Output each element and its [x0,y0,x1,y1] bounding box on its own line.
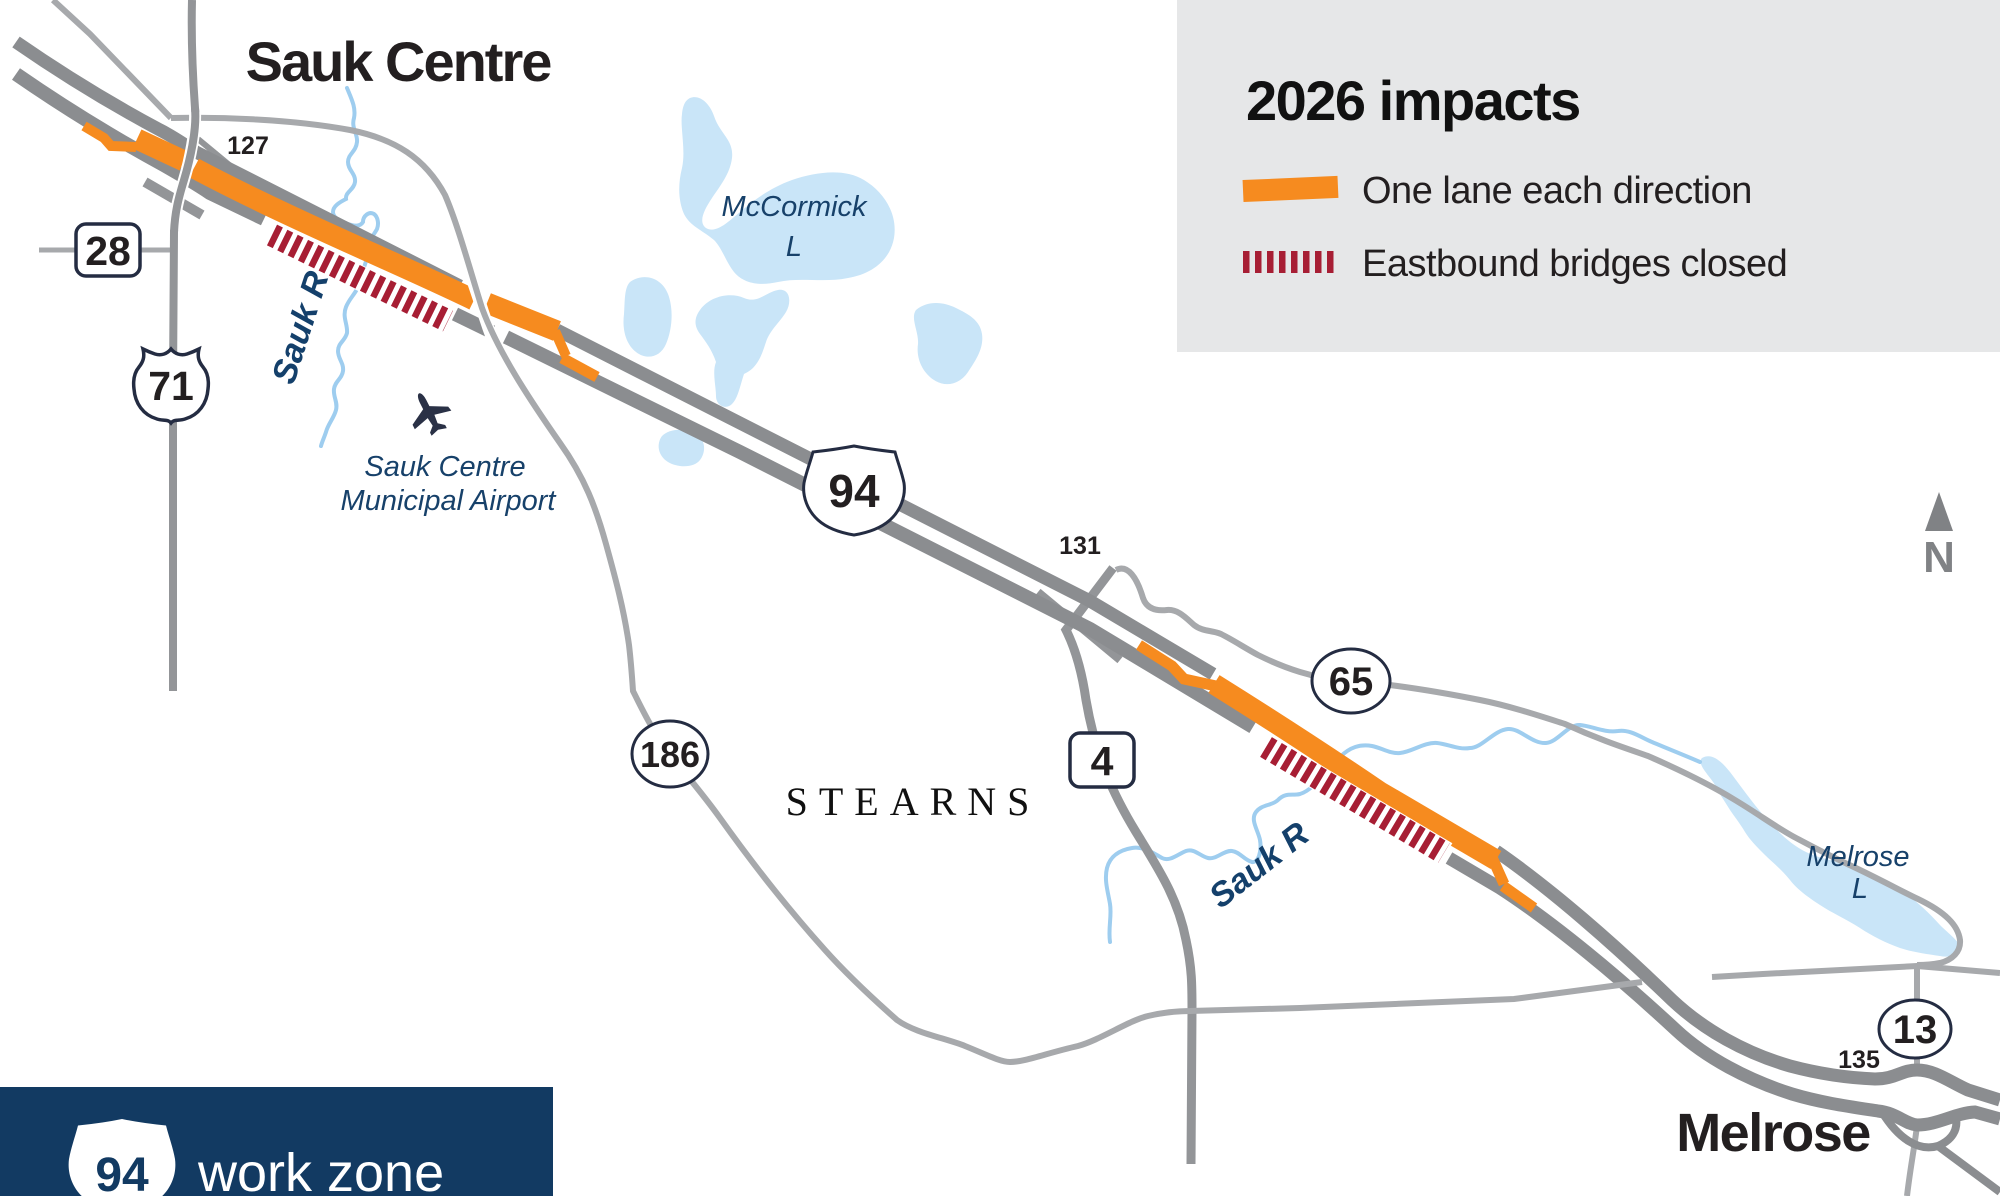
svg-text:186: 186 [640,734,700,775]
svg-text:135: 135 [1838,1046,1880,1074]
svg-text:94: 94 [95,1149,149,1196]
svg-text:28: 28 [85,228,131,274]
svg-text:Eastbound bridges closed: Eastbound bridges closed [1362,243,1787,285]
svg-text:McCormick: McCormick [722,191,868,223]
svg-text:Melrose: Melrose [1806,841,1909,873]
svg-text:Sauk Centre: Sauk Centre [246,30,552,93]
svg-text:Sauk Centre: Sauk Centre [364,451,525,483]
svg-text:L: L [786,231,802,263]
svg-text:STEARNS: STEARNS [786,779,1041,824]
svg-text:94: 94 [828,465,880,517]
svg-text:71: 71 [148,363,194,409]
svg-text:65: 65 [1329,660,1374,704]
svg-text:work zone: work zone [197,1143,444,1196]
svg-text:Municipal Airport: Municipal Airport [341,485,558,517]
svg-text:2026 impacts: 2026 impacts [1246,69,1580,132]
svg-text:13: 13 [1893,1008,1938,1052]
svg-text:Melrose: Melrose [1676,1103,1870,1163]
svg-text:131: 131 [1059,532,1101,560]
svg-text:L: L [1852,873,1868,905]
svg-text:N: N [1923,533,1955,582]
svg-text:One lane each direction: One lane each direction [1362,170,1752,212]
svg-text:4: 4 [1091,738,1114,784]
svg-text:127: 127 [227,132,269,160]
